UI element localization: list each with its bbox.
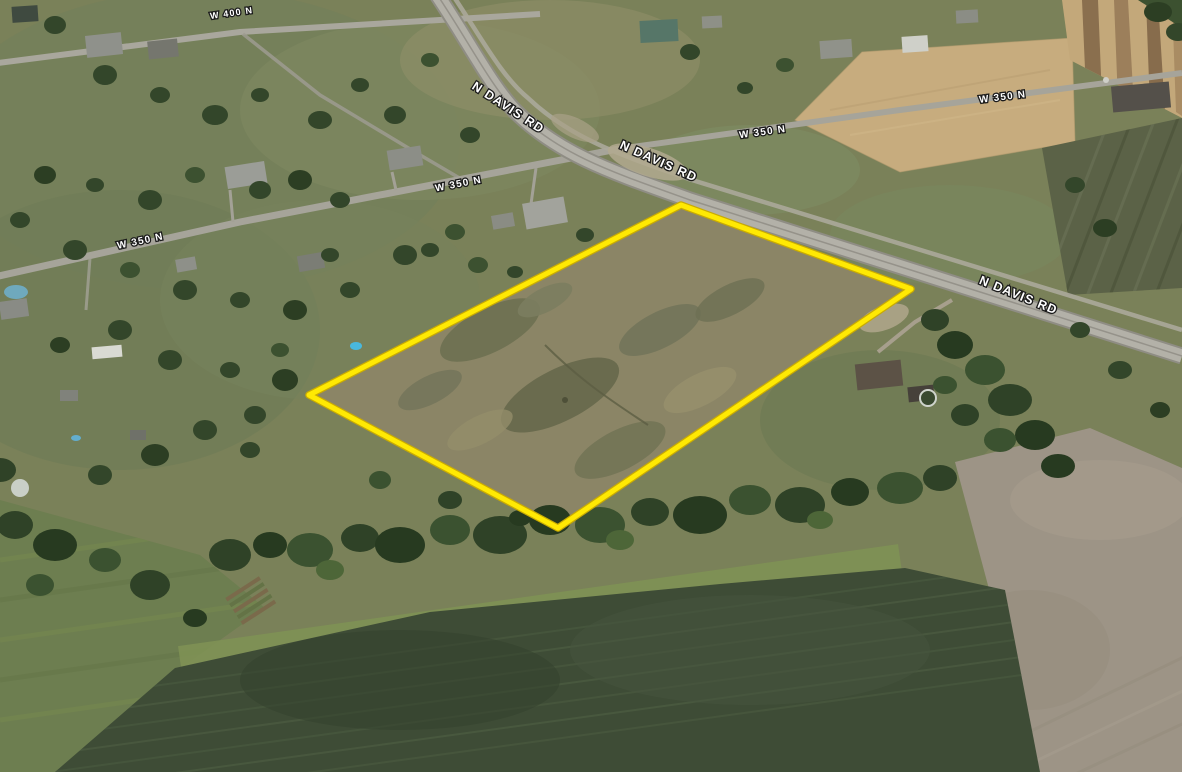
small-pool xyxy=(71,435,81,441)
house xyxy=(11,5,38,23)
silo xyxy=(1103,77,1109,83)
aerial-map-canvas[interactable]: W 400 N N DAVIS RD W 350 N W 350 N N DAV… xyxy=(0,0,1182,772)
trampoline xyxy=(920,390,936,406)
house xyxy=(639,19,678,43)
house xyxy=(901,35,928,53)
house xyxy=(147,38,179,59)
house xyxy=(819,39,852,59)
swimming-pool xyxy=(350,342,362,350)
barn xyxy=(1111,82,1171,113)
shed xyxy=(130,430,146,440)
house xyxy=(85,32,123,58)
shed xyxy=(60,390,78,401)
house xyxy=(956,9,979,23)
round-pool xyxy=(11,479,29,497)
house xyxy=(702,15,723,28)
house xyxy=(855,360,903,391)
pond xyxy=(4,285,28,299)
